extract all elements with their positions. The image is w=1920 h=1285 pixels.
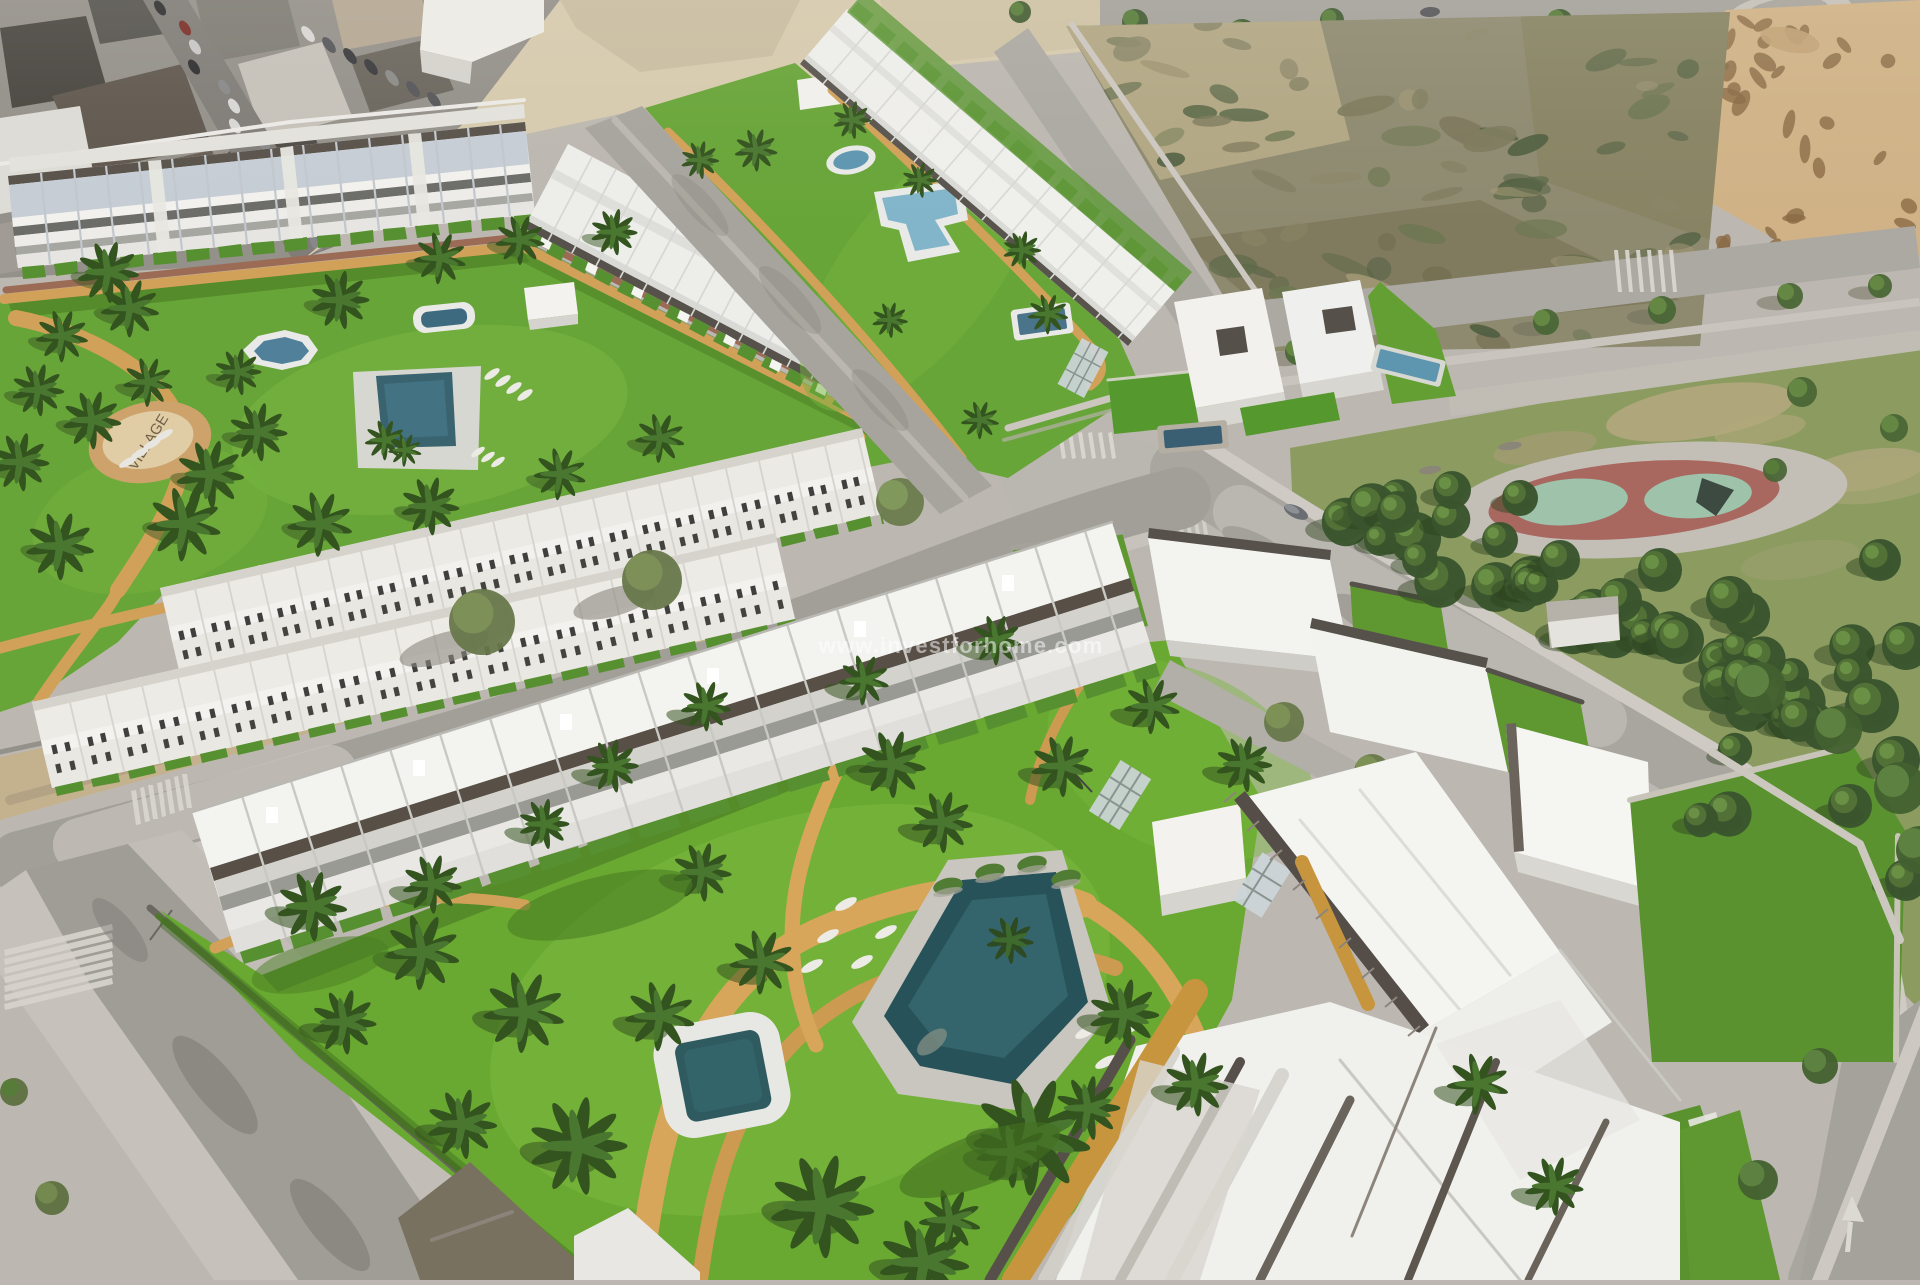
svg-text:www.investforhome.com: www.investforhome.com — [818, 633, 1104, 658]
